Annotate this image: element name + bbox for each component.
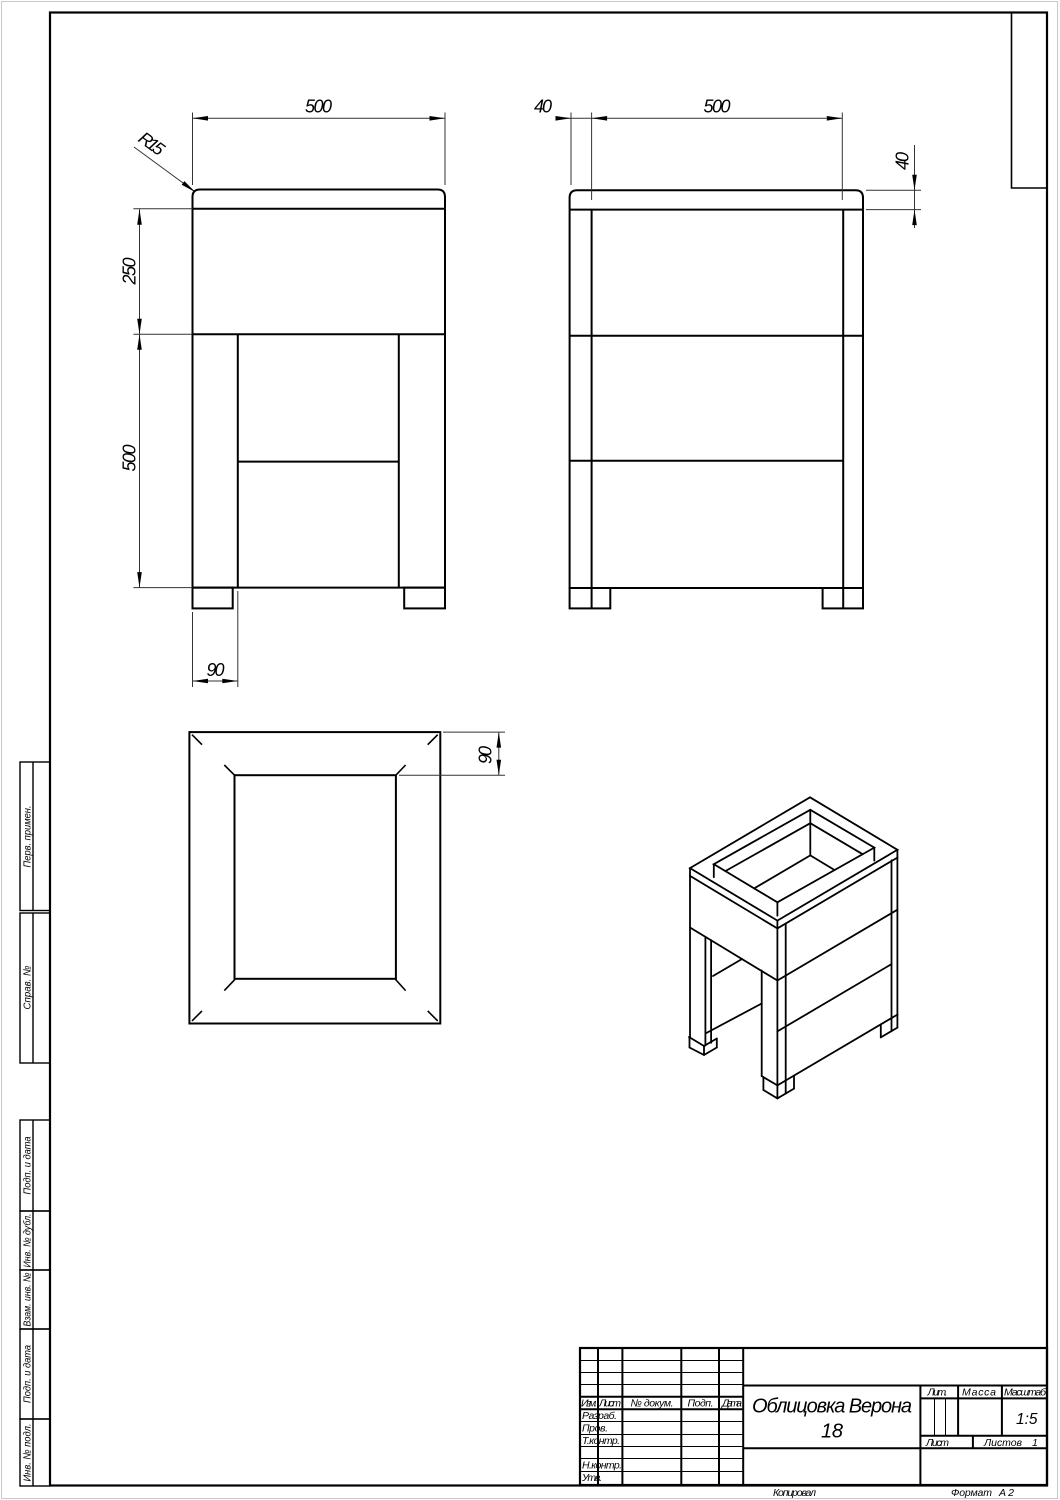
svg-text:Дата: Дата [721,1398,742,1410]
svg-text:Лист: Лист [598,1398,621,1410]
svg-text:250: 250 [120,258,140,286]
svg-text:Справ. №: Справ. № [22,966,34,1010]
svg-text:Инв. № подл.: Инв. № подл. [22,1424,34,1482]
svg-text:Изм.: Изм. [581,1398,597,1410]
svg-text:Формат: Формат [951,1487,992,1499]
svg-text:Н.контр.: Н.контр. [582,1460,622,1472]
svg-text:500: 500 [120,445,140,472]
svg-text:500: 500 [305,97,332,117]
svg-text:1: 1 [1032,1437,1038,1449]
svg-text:Масса: Масса [962,1387,996,1399]
svg-text:Подп. и дата: Подп. и дата [22,1136,34,1194]
svg-text:Перв. примен.: Перв. примен. [22,806,34,868]
svg-text:Листов: Листов [983,1437,1023,1449]
svg-text:40: 40 [893,152,913,170]
svg-text:Т.контр.: Т.контр. [582,1435,620,1447]
svg-text:1:5: 1:5 [1016,1411,1038,1428]
svg-text:Копировал: Копировал [773,1487,816,1499]
svg-text:Подп.: Подп. [688,1398,714,1410]
svg-text:Подп. и дата: Подп. и дата [22,1345,34,1403]
svg-text:Взам. инв. №: Взам. инв. № [22,1273,34,1327]
svg-text:90: 90 [207,660,225,680]
svg-text:Масштаб: Масштаб [1004,1387,1047,1399]
svg-text:Пров.: Пров. [582,1423,608,1435]
svg-text:90: 90 [476,746,496,764]
svg-text:№ докум.: № докум. [631,1398,674,1410]
svg-text:Лит.: Лит. [927,1387,948,1399]
svg-text:500: 500 [704,97,731,117]
svg-text:Облицовка Верона: Облицовка Верона [752,1396,912,1418]
svg-text:Инв. № дубл.: Инв. № дубл. [22,1214,34,1268]
svg-text:Лист: Лист [925,1437,949,1449]
svg-text:40: 40 [534,97,552,117]
svg-text:Разраб.: Разраб. [582,1410,617,1422]
svg-text:18: 18 [821,1421,843,1443]
svg-text:Утв.: Утв. [581,1472,602,1484]
